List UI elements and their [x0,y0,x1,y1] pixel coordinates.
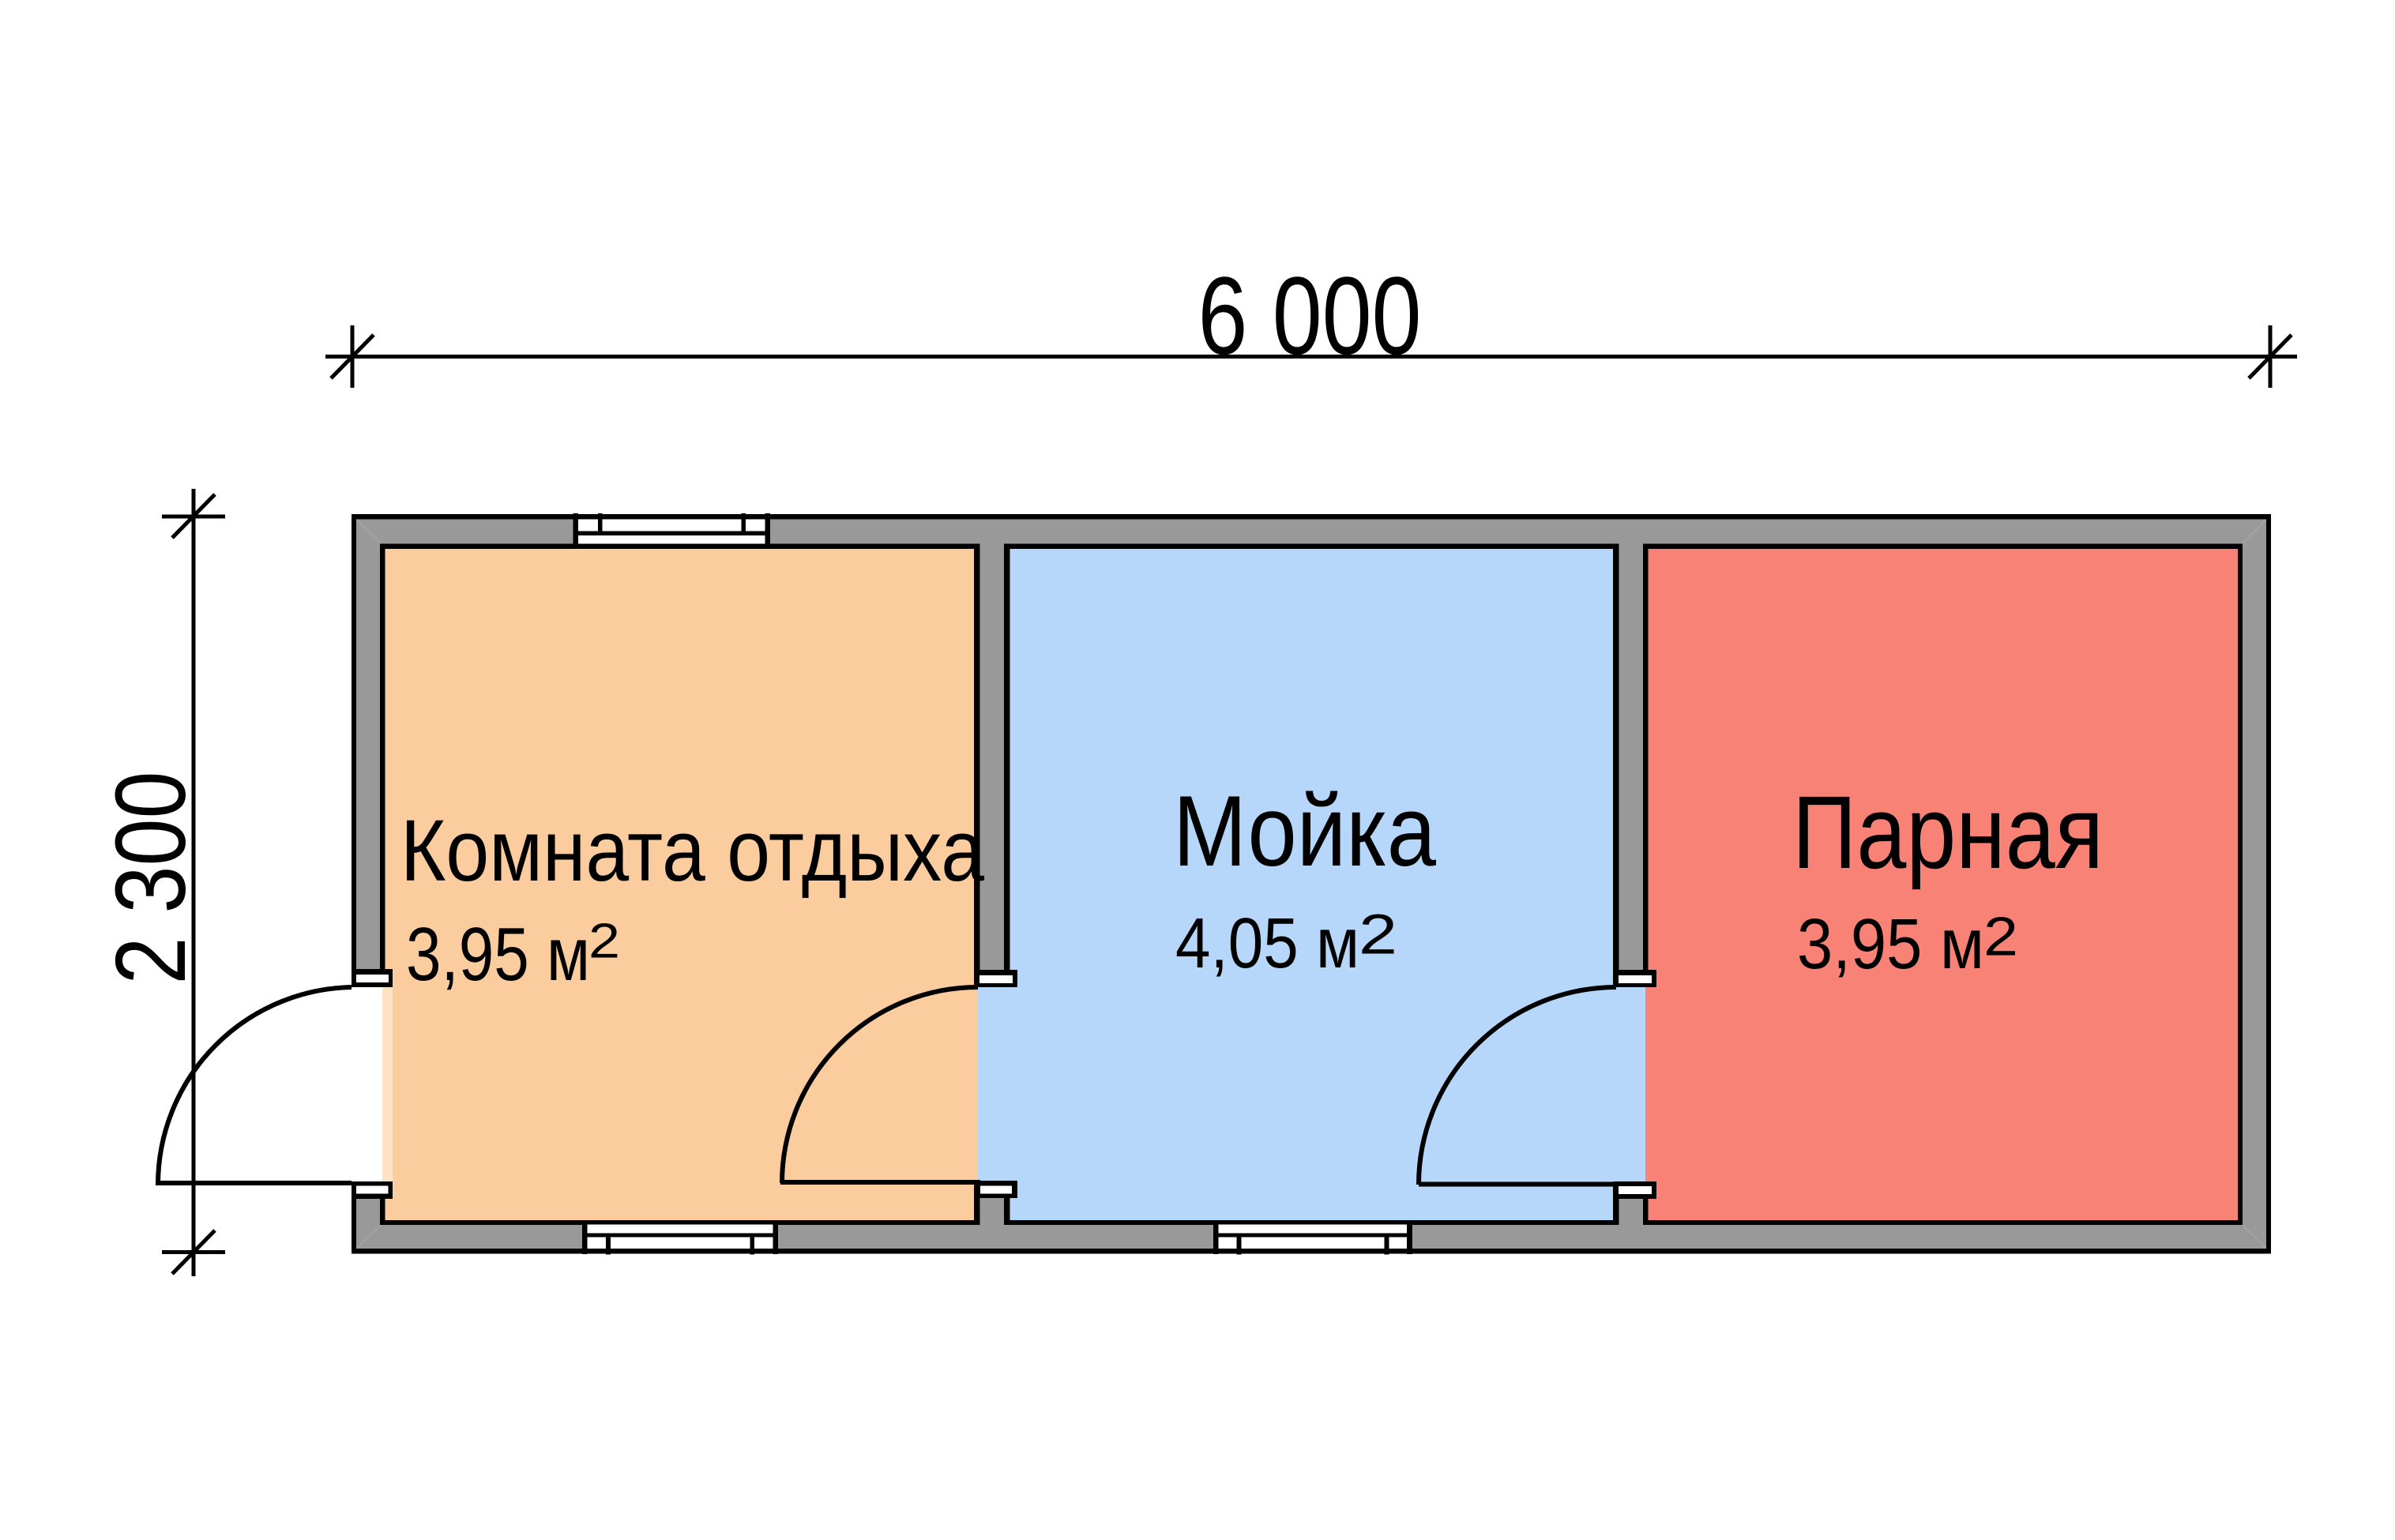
svg-text:2: 2 [1983,906,2018,967]
svg-text:Мойка: Мойка [1173,775,1436,887]
svg-text:6 000: 6 000 [1198,254,1422,377]
svg-text:Парная: Парная [1792,774,2104,890]
svg-text:2: 2 [588,915,620,969]
svg-text:Комната отдыха: Комната отдыха [400,802,985,900]
svg-text:3,95 м: 3,95 м [1797,905,1984,984]
svg-text:2 300: 2 300 [95,772,206,985]
svg-text:4,05 м: 4,05 м [1175,904,1359,983]
svg-text:3,95 м: 3,95 м [406,912,590,997]
svg-text:2: 2 [1359,904,1397,967]
